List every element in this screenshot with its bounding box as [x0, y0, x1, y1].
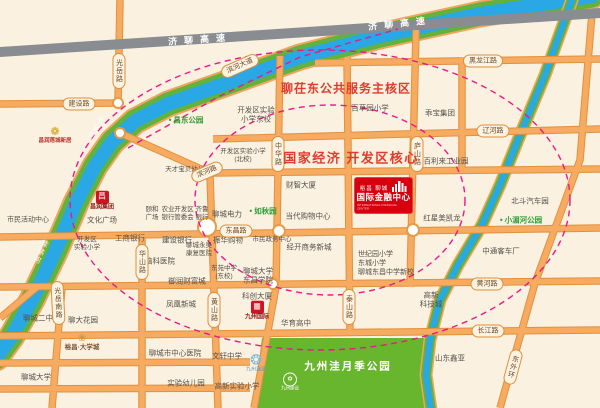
changrun-group-logo-text: 昌润集团	[90, 205, 114, 212]
kaifaqu-exp-primary-east: 开发区实验 小学东校	[237, 106, 275, 125]
badge-binhe-avenue: 滨河大道	[219, 52, 261, 80]
ruqiu-garden-label-text: 如秋园	[254, 207, 277, 216]
changdong-park-label-text: 昌东公园	[173, 116, 203, 125]
park-brand-logo-text: 九州建设	[281, 387, 299, 392]
caizhi-tower: 财智大厦	[286, 180, 316, 189]
badge-guangyue-south-road: 光岳南路	[50, 281, 65, 326]
ifc-subtitle: INTERNATIONAL FINANCIAL CENTER	[357, 203, 410, 210]
liaoda-garden: 聊大花园	[68, 315, 98, 324]
dangdai-shopping-center: 当代购物中心	[286, 211, 331, 220]
jiuzhou-wenquan-logo-text: 九州温泉	[246, 368, 266, 374]
jiuzhou-wenquan-logo: ❂九州温泉	[246, 353, 266, 374]
badge-guangyue-road: 光岳路	[113, 53, 126, 89]
east-schools-group: 世纪园小学 东城小学 聊城东昌中学新校	[358, 251, 414, 277]
tuhai-river-label-2: 徒骇河	[30, 238, 50, 267]
kaifaqu-exp-primary-west: 开发区 实验小学	[74, 236, 100, 252]
building-icon	[391, 180, 407, 192]
badge-heilongjiang-road: 黑龙江路	[463, 55, 503, 68]
badge-changjiang-road: 长江路	[472, 325, 505, 338]
changrun-group-logo-icon: 昌	[95, 191, 108, 204]
huayu-high-school: 华育高中	[281, 318, 311, 327]
map-labels-layer: 建设路光岳路滨河大道黑龙江路辽河路滨河路中华路庐山路东昌路华山路黄山路泰山路光岳…	[0, 0, 600, 408]
tuhai-river-label-1: 徒骇河	[84, 114, 106, 142]
xiaomeihe-park-label-text: 小湄河公园	[505, 216, 543, 225]
jiuzhou-intl-logo-text: 九州国际	[245, 315, 269, 322]
gaoxin-tech-city: 高新 科技城	[420, 291, 443, 310]
location-map: 建设路光岳路滨河大道黑龙江路辽河路滨河路中华路庐山路东昌路华山路黄山路泰山路光岳…	[0, 0, 600, 408]
agricultural-bank: 农业 银行	[162, 206, 175, 222]
liaocheng-central-hospital: 聊城市中心医院	[149, 348, 202, 357]
zhongtong-bus-factory: 中通客车厂	[482, 246, 520, 255]
zone-label-kaifaqu-core: 国家经济 开发区核心	[283, 148, 419, 167]
ifc-brand-line: 裕昌 聊城	[360, 184, 389, 192]
experimental-kindergarten: 实验幼儿园	[167, 378, 205, 387]
yuchang-daxuecheng-logo-text: 裕昌·大学城	[65, 344, 100, 351]
xiaomei-river-label: 小湄河	[442, 234, 463, 263]
dongyuan-middle-east-campus: 东苑中学 (东校)	[211, 265, 237, 281]
ifc-title: 国际金融中心	[356, 192, 410, 202]
green-dot-icon: •	[500, 216, 503, 225]
culture-square: 文化广场	[87, 215, 117, 224]
wenxuan-middle-school: 文轩中学	[212, 351, 242, 360]
liaocheng-university: 聊城大学	[21, 372, 51, 381]
badge-liaohe-road: 辽河路	[477, 125, 510, 138]
liancheng-xinju-logo-icon: ❁	[50, 126, 59, 138]
citizen-activity-center: 市民活动中心	[7, 217, 49, 226]
yihe-plaza: 颐和 广场	[146, 206, 159, 222]
badge-huangshan-road: 黄山路	[208, 292, 221, 328]
qilu-bank: 齐鲁 银行	[196, 206, 209, 222]
liancheng-xinju-logo: ❁昌润莲城新居	[38, 126, 71, 144]
liaocheng-no2-middle: 聊城二中	[23, 313, 53, 322]
liaocheng-power: 聊城电力	[212, 209, 242, 218]
badge-dongchang-road: 东昌路	[220, 225, 253, 238]
jingkai-business-newtown: 经开商务新城	[287, 242, 332, 251]
park-name-label: 九州洼月季公园	[304, 359, 392, 374]
baicaoyuan-primary: 百草园小学	[351, 103, 389, 112]
yuchang-daxuecheng-logo: ❀裕昌·大学城	[65, 333, 100, 351]
yongao-rehab-hospital: 聊城永奥 康复医院	[186, 242, 212, 258]
changrun-group-logo: 昌昌润集团	[90, 191, 114, 212]
kechuang-tower: 科创大厦	[242, 291, 272, 300]
park-brand-logo-icon: ✿	[283, 373, 297, 387]
jiuzhou-intl-logo-icon: ▦	[250, 301, 263, 314]
changdong-park-label: •昌东公园	[169, 115, 204, 126]
jiuzhou-intl-logo: ▦九州国际	[245, 301, 269, 322]
gaoxin-exp-primary: 高新实验小学	[215, 381, 260, 390]
green-dot-icon: •	[249, 207, 252, 216]
badge-dongwaihuan-road: 东外环	[502, 348, 524, 386]
park-brand-logo: ✿九州建设	[281, 373, 299, 392]
ruqiu-garden-label: •如秋园	[249, 206, 276, 217]
yurun-wealth-city: 御润财富城	[168, 276, 206, 285]
liancheng-xinju-logo-text: 昌润莲城新居	[38, 138, 71, 144]
icbc-bank: 工商银行	[115, 233, 145, 242]
badge-huanghe-road: 黄河路	[471, 278, 504, 291]
yuchang-daxuecheng-logo-icon: ❀	[78, 333, 86, 344]
shandong-xinya: 山东鑫亚	[435, 353, 465, 362]
badge-huashan-road: 华山路	[136, 244, 149, 280]
jiliao-expressway-label-west: 济聊高速	[168, 30, 233, 47]
badge-binhe-road: 滨河路	[189, 160, 224, 185]
badge-jianshe-road: 建设路	[63, 98, 96, 111]
kaifaqu-exp-primary-north: 开发区实验小学 (北校)	[220, 148, 266, 164]
badge-taishan-road: 泰山路	[343, 289, 356, 325]
kaifaqu-committee: 开发区 管委会	[174, 206, 194, 222]
zone-label-liaochidong: 聊茌东公共服务主核区	[281, 80, 411, 97]
liaocheng-univ-dongchang-college: 聊城大学 东昌学院	[243, 267, 273, 286]
green-dot-icon: •	[169, 116, 172, 125]
guaibao-group: 乖宝集团	[425, 108, 455, 117]
yuchang-ifc-project-box: 裕昌 聊城 国际金融中心 INTERNATIONAL FINANCIAL CEN…	[354, 177, 413, 214]
hongxing-meikailong: 红星美凯龙	[423, 213, 461, 222]
baililai-industrial-park: 百利来工业园	[424, 156, 469, 165]
jiliao-expressway-label-east: 济聊高速	[367, 13, 432, 33]
naoke-hospital: 脑科医院	[145, 256, 175, 265]
xiaomeihe-park-label: •小湄河公园	[500, 215, 542, 226]
fenghuang-new-town: 凤凰新城	[166, 299, 196, 308]
beidou-auto-park: 北斗汽车园	[511, 196, 549, 205]
